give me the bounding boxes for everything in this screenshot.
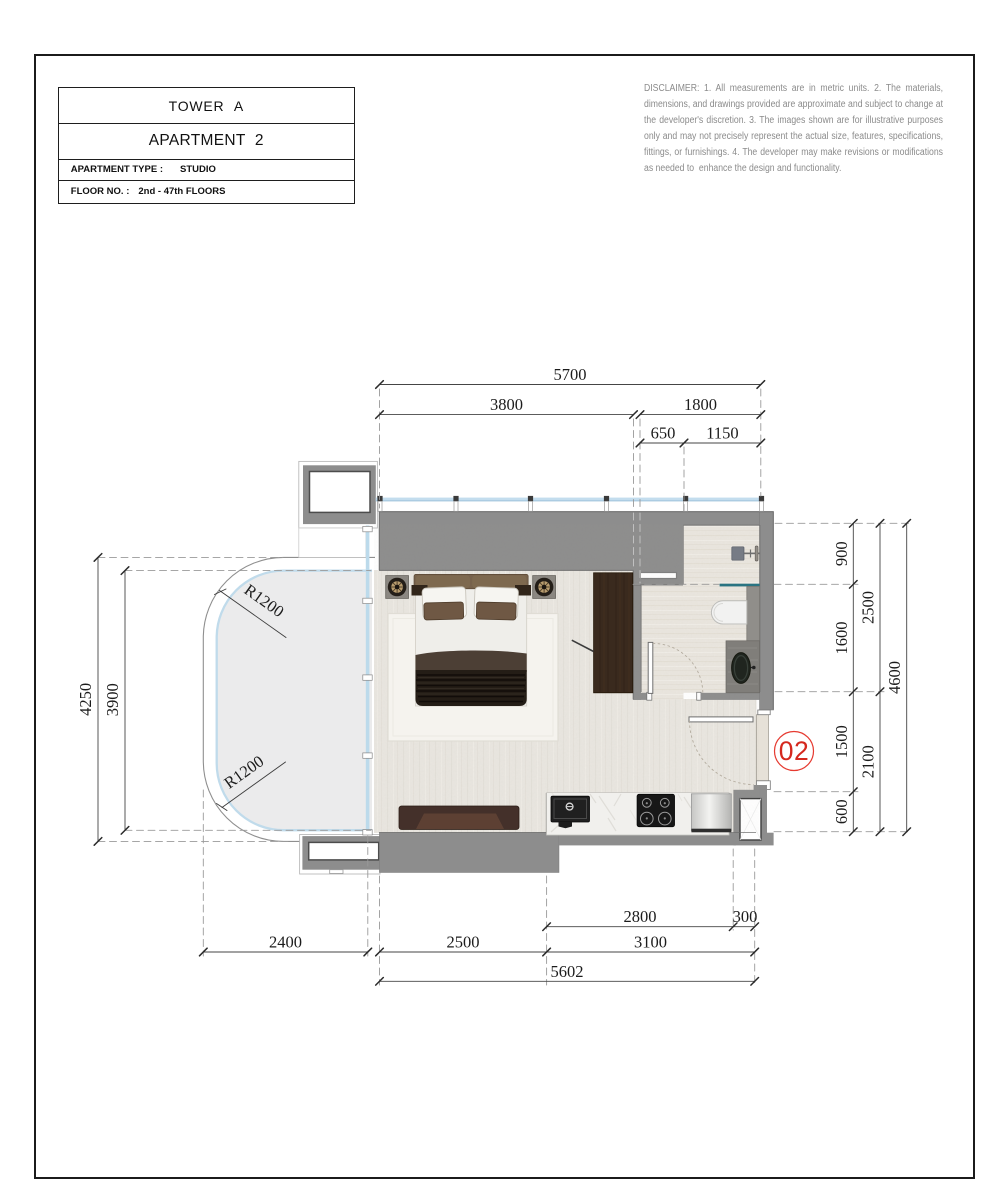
svg-text:300: 300 (733, 907, 758, 926)
svg-text:1150: 1150 (706, 424, 738, 443)
svg-text:650: 650 (651, 424, 676, 443)
svg-text:2800: 2800 (624, 907, 657, 926)
svg-text:2500: 2500 (859, 591, 878, 624)
svg-text:3100: 3100 (634, 933, 667, 952)
svg-text:1600: 1600 (832, 622, 851, 655)
svg-text:5700: 5700 (554, 365, 587, 384)
svg-text:4250: 4250 (76, 683, 95, 716)
svg-text:2400: 2400 (269, 933, 302, 952)
svg-text:5602: 5602 (551, 962, 584, 981)
svg-text:1500: 1500 (832, 725, 851, 758)
svg-text:900: 900 (832, 541, 851, 566)
svg-text:02: 02 (779, 736, 809, 766)
svg-text:2500: 2500 (447, 933, 480, 952)
svg-text:3900: 3900 (103, 683, 122, 716)
svg-text:2100: 2100 (859, 745, 878, 778)
svg-text:3800: 3800 (490, 395, 523, 414)
svg-text:1800: 1800 (684, 395, 717, 414)
svg-text:600: 600 (832, 799, 851, 824)
svg-text:4600: 4600 (885, 661, 904, 694)
